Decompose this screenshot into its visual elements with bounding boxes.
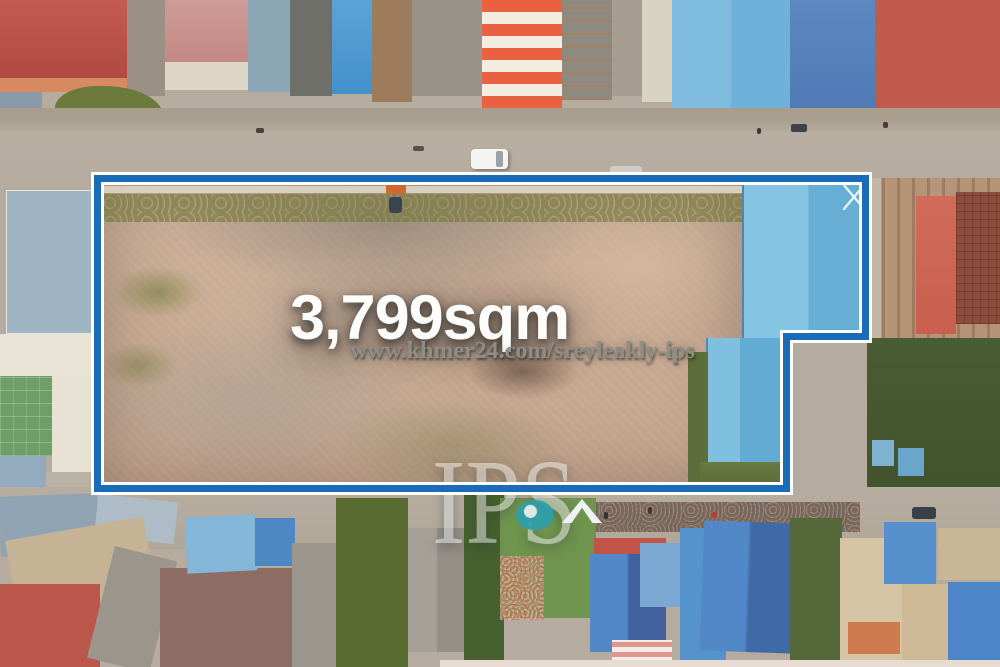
building-roof: [790, 0, 875, 110]
trash-lot: [336, 498, 408, 667]
van-windshield: [496, 151, 503, 167]
building-roof: [165, 0, 248, 64]
pedestrian: [648, 507, 652, 514]
building-roof: [292, 543, 338, 667]
ips-logo-swoosh-icon: [516, 500, 554, 530]
building-roof: [412, 0, 482, 96]
blue-tarp: [872, 440, 894, 466]
construction-lot: [372, 0, 412, 102]
building-roof: [884, 522, 936, 584]
building-roof: [290, 0, 332, 96]
building-roof: [938, 528, 1000, 580]
alley: [867, 178, 881, 340]
building-roof: [562, 0, 612, 100]
building-roof: [642, 0, 672, 102]
building-roof: [248, 0, 290, 92]
warehouse-roof-lower: [706, 338, 788, 466]
vegetation: [790, 518, 842, 667]
building-roof: [127, 0, 165, 96]
road-top: [0, 108, 1000, 182]
vehicle: [791, 124, 807, 132]
building-roof-red: [0, 584, 100, 667]
building-roof: [255, 518, 295, 566]
building-roof-striped: [482, 0, 562, 112]
blue-tarp: [898, 448, 924, 476]
motorbike: [256, 128, 264, 133]
red-roof: [916, 196, 956, 334]
building-roof: [0, 334, 92, 376]
building-roof: [165, 62, 248, 90]
motorbike: [413, 146, 424, 151]
pedestrian-red: [712, 512, 717, 518]
pedestrian: [883, 122, 888, 128]
building-roof-orange: [848, 622, 900, 654]
building-roof: [6, 190, 94, 334]
aerial-photo: IPS 3,799sqm www.khmer24.com/sreyleakly-…: [0, 0, 1000, 667]
dark-debris: [389, 197, 402, 213]
building-roof-mauve: [160, 568, 292, 667]
brick-roof: [956, 192, 1000, 324]
plot-front-wall: [100, 186, 742, 193]
building-roof: [0, 0, 127, 80]
building-roof: [672, 0, 790, 114]
plot-moss-row: [100, 194, 742, 222]
road-strip: [440, 660, 1000, 667]
building-roof: [185, 514, 258, 574]
building-roof-green: [0, 376, 52, 456]
pedestrian: [604, 512, 608, 519]
building-roof: [875, 0, 1000, 114]
roof-x-brace: [843, 184, 865, 210]
building-roof: [640, 543, 682, 607]
excavator: [386, 183, 406, 194]
building-roof: [612, 0, 642, 96]
building-roof: [52, 376, 94, 472]
listing-url-watermark: www.khmer24.com/sreyleakly-ips: [350, 339, 695, 363]
dark-suv: [912, 507, 936, 519]
building-roof: [332, 0, 372, 94]
pedestrian: [757, 128, 761, 134]
ips-watermark: IPS: [432, 442, 577, 564]
silver-car: [610, 166, 642, 180]
vegetation: [867, 338, 1000, 500]
building-roof-gabled: [700, 520, 796, 653]
building-roof: [948, 582, 1000, 667]
plot-edge-vegetation: [700, 462, 786, 488]
